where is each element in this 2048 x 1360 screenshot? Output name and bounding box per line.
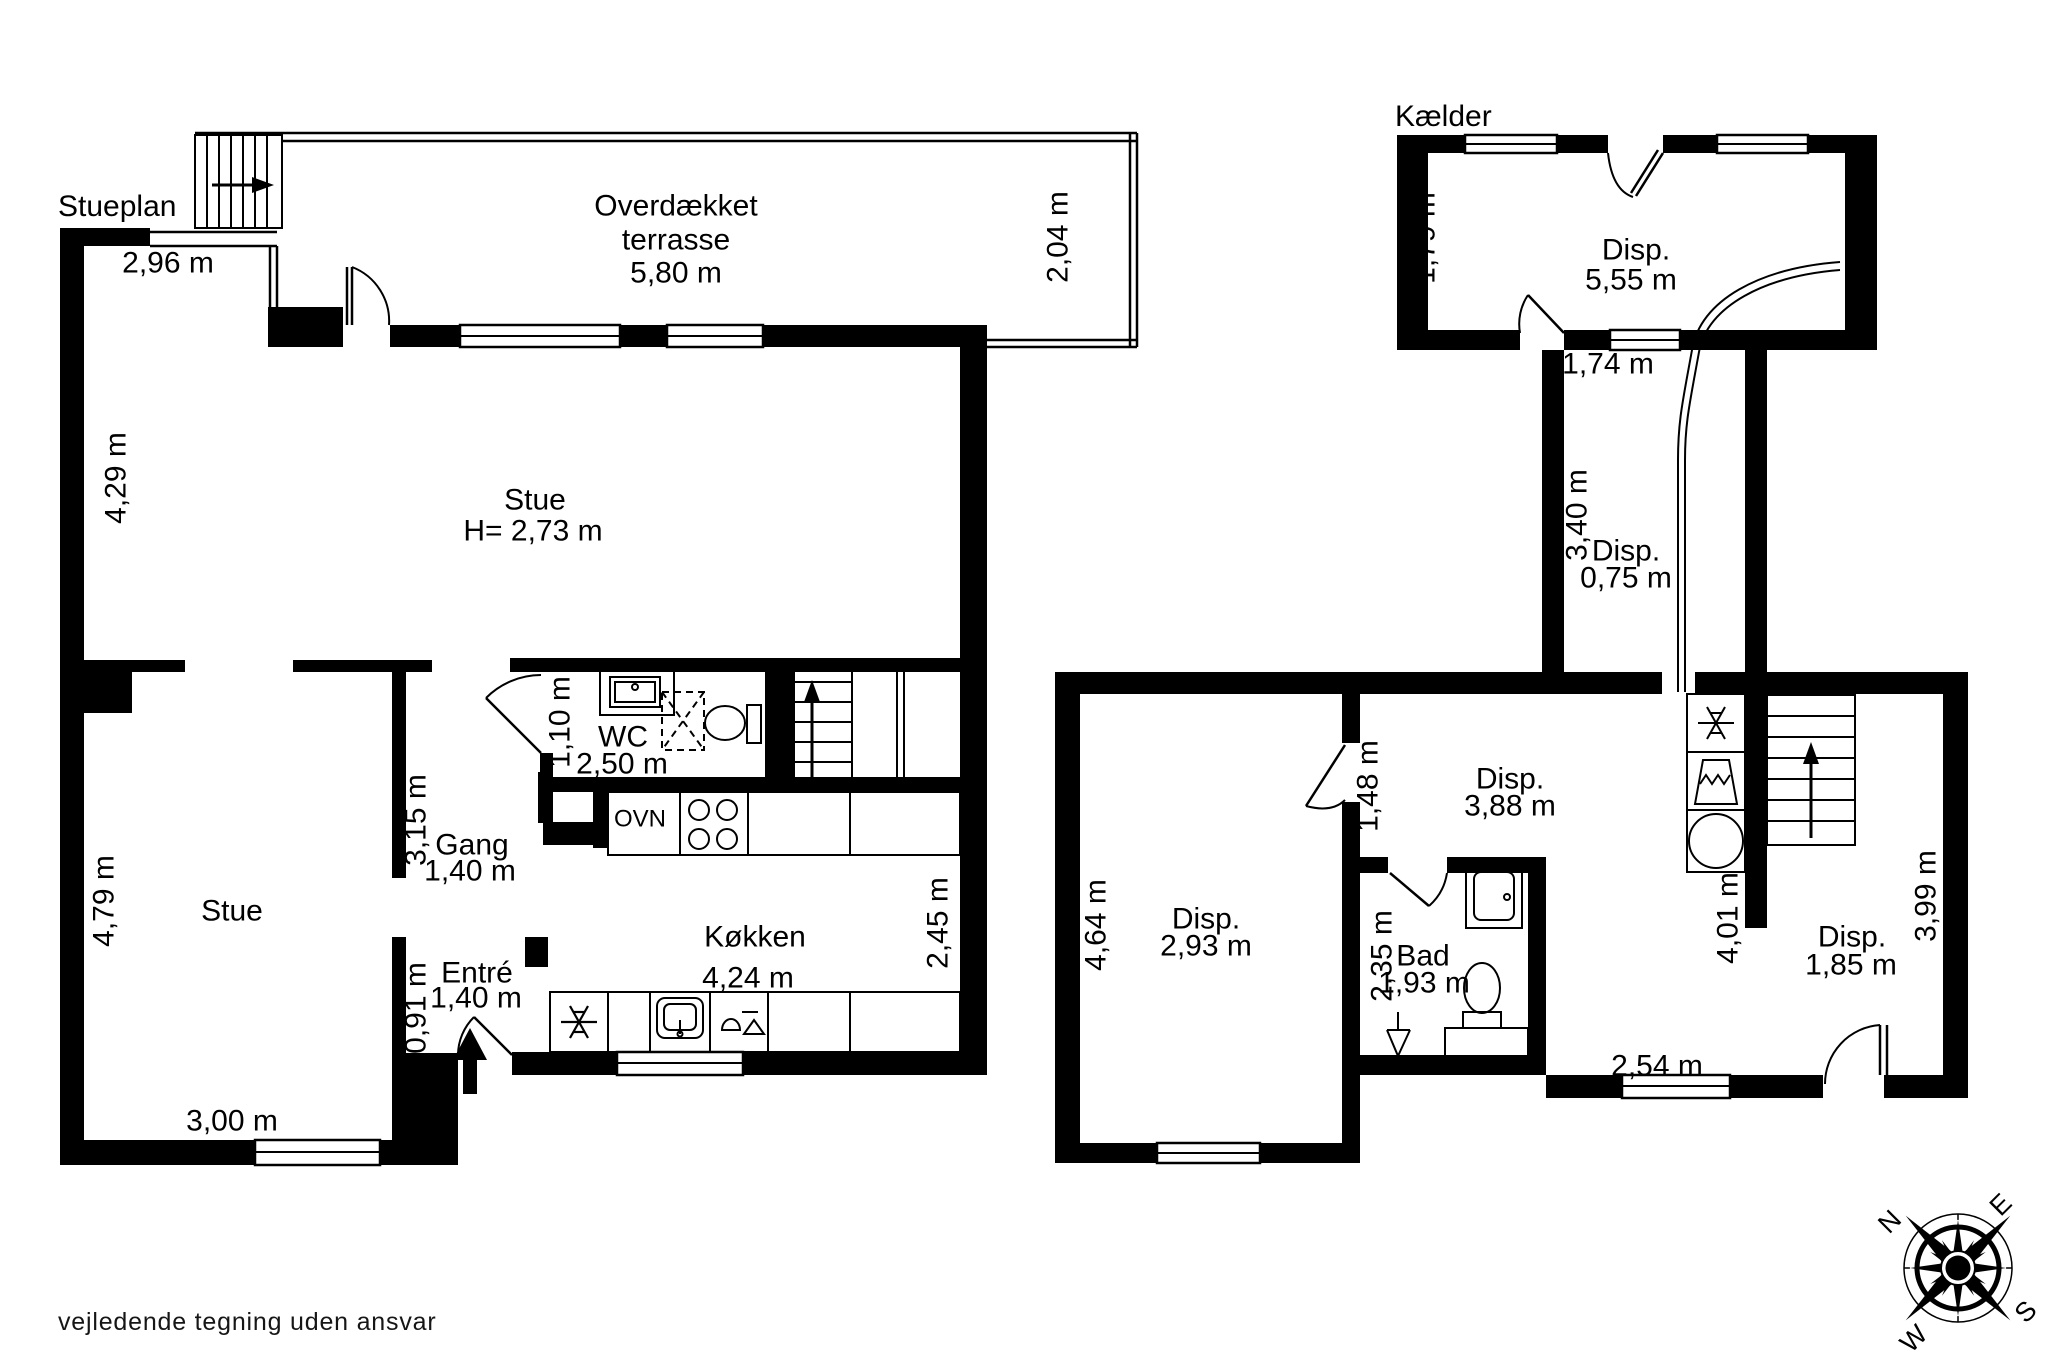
label-disp4-depth: 3,99 m [1910, 850, 1942, 942]
wall-kitchen-bottom [743, 1052, 987, 1075]
wall-left [60, 228, 84, 1165]
interior-stairs [795, 660, 904, 792]
label-disp2-width: 3,88 m [1464, 790, 1556, 822]
wall-piece-a [538, 772, 553, 823]
entrance-arrow [453, 1028, 487, 1094]
wall-bottom-left [60, 1140, 255, 1165]
boiler-box [1687, 810, 1745, 872]
wall-bs-top-right [1845, 135, 1877, 350]
freezer-icon [561, 1006, 597, 1038]
floorplan-canvas: Stueplan 2,96 m Overdækket terrasse 5,80… [0, 0, 2048, 1360]
label-gang-depth: 3,15 m [400, 774, 432, 866]
kitchen-sink [657, 998, 703, 1038]
label-disp1-width: 5,55 m [1585, 264, 1677, 296]
wall-terrace-seg3 [763, 325, 987, 347]
label-disp4-left-dim: 4,01 m [1712, 872, 1744, 964]
wc-toilet-tank [747, 705, 761, 743]
wall-bad-right [1528, 857, 1546, 1075]
dishwasher-icon [722, 1012, 764, 1034]
wall-terrace-seg1 [390, 325, 460, 347]
label-kokken-depth: 2,45 m [922, 877, 954, 969]
label-stue2-width: 3,00 m [186, 1105, 278, 1137]
basement-title: Kælder [1395, 100, 1492, 134]
basement-plan [1055, 135, 1968, 1163]
window-bs-bottom-left [1157, 1143, 1260, 1163]
door-terrace [347, 267, 389, 325]
label-disp3-width: 2,93 m [1160, 930, 1252, 962]
window-terrace-2 [667, 325, 763, 347]
label-wc-door-dim: 1,10 m [544, 676, 576, 768]
label-kokken-name: Køkken [704, 921, 806, 953]
door-bs-disp1 [1519, 295, 1564, 333]
window-kitchen [617, 1052, 743, 1075]
label-disp1-depth: 1,79 m [1409, 192, 1441, 284]
label-top-wall-dim: 2,96 m [122, 247, 214, 279]
label-ovn: OVN [614, 806, 666, 831]
wall-mid-seg [293, 660, 432, 672]
terrace-name: Overdækket terrasse [541, 190, 811, 257]
wall-top [60, 228, 150, 246]
wall-right [960, 327, 987, 1075]
window-stue-bottom [255, 1140, 380, 1165]
door-wc [486, 675, 541, 753]
basement-stairs [1767, 695, 1855, 845]
label-disp3-depth: 4,64 m [1080, 879, 1112, 971]
door-bs-exterior [1825, 1025, 1887, 1084]
outdoor-stairs [195, 135, 282, 228]
wall-notch [84, 672, 132, 713]
wall-bs-outer-right [1943, 672, 1968, 1098]
wall-entre-stub [525, 937, 548, 967]
wall-piece-b [543, 822, 593, 845]
wall-piece-c [593, 787, 608, 848]
wall-stairs-left [765, 658, 795, 792]
label-disp1-name: Disp. [1602, 234, 1670, 266]
label-stue-height: H= 2,73 m [463, 515, 602, 547]
window-bs-top-1 [1465, 135, 1557, 153]
interior-stairs-arrow [804, 680, 820, 702]
wall-bottom-right [380, 1140, 413, 1165]
label-disp1-door: 1,74 m [1562, 348, 1654, 380]
terrace-width: 5,80 m [541, 257, 811, 291]
wall-bs-lower-left [1055, 672, 1080, 1163]
label-corridor-width: 0,75 m [1580, 562, 1672, 594]
basement-windows [1157, 135, 1808, 1163]
ground-floor-title: Stueplan [58, 190, 176, 224]
label-wc-width: 2,50 m [576, 748, 668, 780]
door-bs-bad [1390, 873, 1447, 906]
wall-entre-bottom [512, 1052, 617, 1075]
label-terrace: Overdækket terrasse 5,80 m [541, 190, 811, 291]
label-stue-left-dim: 4,29 m [100, 432, 132, 524]
ground-floor-walls [60, 228, 987, 1165]
window-terrace-1 [460, 325, 620, 347]
label-stue-name: Stue [504, 484, 566, 516]
window-bs-top-2 [1717, 135, 1808, 153]
label-disp4-width: 1,85 m [1805, 949, 1897, 981]
washer-box [1687, 752, 1745, 810]
label-entre-width: 1,40 m [430, 982, 522, 1014]
stairs-direction-arrow [252, 177, 274, 193]
bad-floor-drain [1387, 1012, 1410, 1056]
label-entre-depth: 0,91 m [400, 962, 432, 1054]
basement-stairs-arrow [1803, 742, 1819, 764]
label-disp2-door: 1,48 m [1352, 740, 1384, 832]
label-terrace-depth: 2,04 m [1042, 191, 1074, 283]
label-corridor-depth: 3,40 m [1561, 469, 1593, 561]
compass-rose [1853, 1163, 2048, 1360]
basement-walls [1055, 135, 1968, 1163]
kitchen-counter-bottom [550, 992, 960, 1052]
basement-appliances [1687, 694, 1745, 872]
label-kokken-width: 4,24 m [702, 962, 794, 994]
label-bad-depth: 2,35 m [1366, 910, 1398, 1002]
door-bs-disp3 [1306, 745, 1345, 808]
floorplan-drawing [0, 0, 2048, 1360]
wall-mid-stub [84, 660, 185, 672]
door-bs-top-double [1608, 150, 1663, 197]
wall-terrace-seg2 [620, 325, 667, 347]
wall-corridor-right [1745, 350, 1767, 928]
stove-burners [689, 800, 737, 849]
label-stue2-name: Stue [201, 895, 263, 927]
wall-wc-top [510, 658, 960, 672]
freezer-box [1687, 694, 1745, 752]
label-gang-width: 1,40 m [424, 855, 516, 887]
disclaimer-text: vejledende tegning uden ansvar [58, 1308, 436, 1337]
label-passage-width: 2,54 m [1611, 1050, 1703, 1082]
wall-terrace-corner [268, 307, 343, 347]
label-stue2-left-dim: 4,79 m [88, 855, 120, 947]
bad-sink [1466, 864, 1522, 928]
wc-toilet [705, 706, 745, 740]
